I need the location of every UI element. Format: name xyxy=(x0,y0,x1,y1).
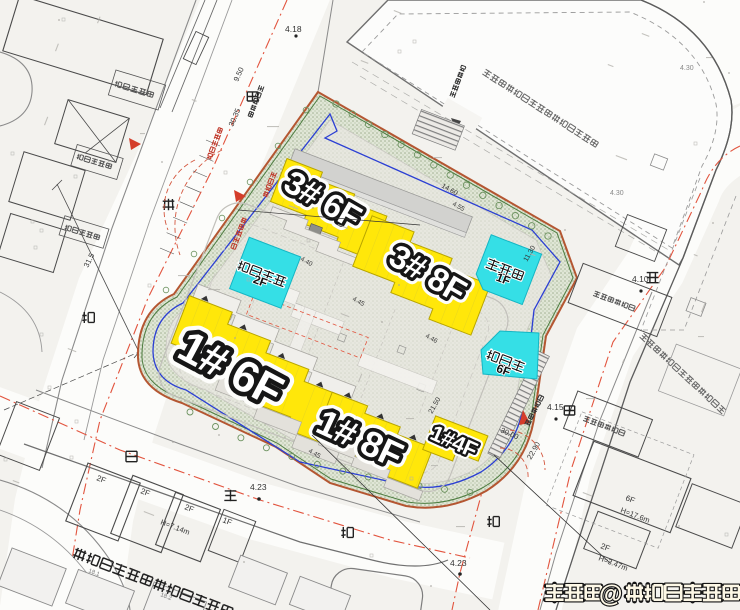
svg-text:4.23: 4.23 xyxy=(450,558,467,568)
svg-text:4.18: 4.18 xyxy=(285,24,302,34)
svg-text:4.30: 4.30 xyxy=(680,65,694,72)
svg-text:4.23: 4.23 xyxy=(250,482,267,492)
svg-text:4.10: 4.10 xyxy=(632,274,649,284)
svg-text:4.30: 4.30 xyxy=(610,190,624,197)
svg-text:@: @ xyxy=(599,581,622,608)
svg-text:4.15: 4.15 xyxy=(547,402,564,412)
